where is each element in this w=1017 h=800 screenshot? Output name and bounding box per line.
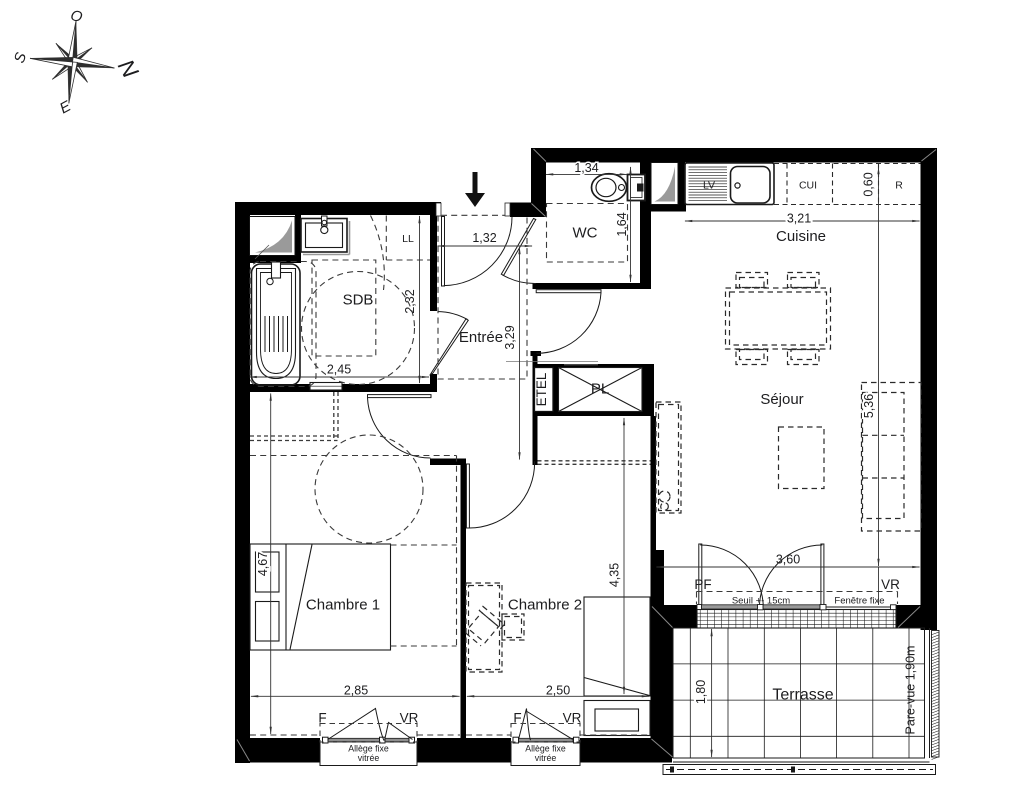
svg-text:1,80: 1,80 (694, 680, 708, 704)
svg-text:LL: LL (402, 233, 414, 245)
svg-text:Pare-vue 1,90m: Pare-vue 1,90m (904, 646, 918, 735)
svg-text:2,85: 2,85 (344, 684, 368, 698)
svg-text:Chambre 1: Chambre 1 (306, 597, 380, 614)
svg-text:R: R (895, 180, 903, 192)
svg-text:LV: LV (703, 180, 715, 192)
svg-text:5,36: 5,36 (862, 394, 876, 418)
svg-text:Cuisine: Cuisine (776, 228, 826, 245)
svg-text:1,32: 1,32 (472, 231, 496, 245)
svg-text:vitrée: vitrée (535, 753, 557, 763)
svg-text:Entrée: Entrée (459, 329, 503, 346)
svg-text:2,32: 2,32 (403, 289, 417, 313)
svg-text:1,64: 1,64 (615, 212, 629, 236)
svg-text:VR: VR (563, 711, 582, 726)
svg-text:PL: PL (591, 381, 609, 398)
svg-text:2,45: 2,45 (327, 363, 351, 377)
svg-text:1,34: 1,34 (574, 161, 598, 175)
svg-text:Chambre 2: Chambre 2 (508, 597, 582, 614)
svg-text:CUI: CUI (799, 180, 817, 192)
svg-text:Séjour: Séjour (760, 391, 803, 408)
svg-text:4,35: 4,35 (608, 563, 622, 587)
svg-text:VR: VR (881, 577, 900, 592)
svg-text:F: F (318, 711, 326, 726)
svg-text:SDB: SDB (343, 292, 374, 309)
svg-text:Seuil +- 15cm: Seuil +- 15cm (732, 596, 790, 607)
svg-text:Terrasse: Terrasse (772, 687, 833, 704)
svg-text:0,60: 0,60 (862, 172, 876, 196)
svg-text:3,21: 3,21 (787, 212, 811, 226)
svg-text:VR: VR (400, 711, 419, 726)
svg-text:WC: WC (573, 225, 598, 242)
svg-text:3,29: 3,29 (503, 325, 517, 349)
svg-text:PF: PF (694, 577, 711, 592)
svg-text:Allège fixe: Allège fixe (525, 744, 566, 754)
svg-text:3,60: 3,60 (776, 553, 800, 567)
svg-text:Fenêtre fixe: Fenêtre fixe (834, 596, 884, 607)
svg-text:vitrée: vitrée (358, 753, 380, 763)
svg-text:ETEL: ETEL (534, 372, 549, 406)
svg-text:Allège fixe: Allège fixe (348, 744, 389, 754)
svg-text:4,67: 4,67 (256, 552, 270, 576)
svg-text:F: F (513, 711, 521, 726)
svg-text:2,50: 2,50 (546, 684, 570, 698)
